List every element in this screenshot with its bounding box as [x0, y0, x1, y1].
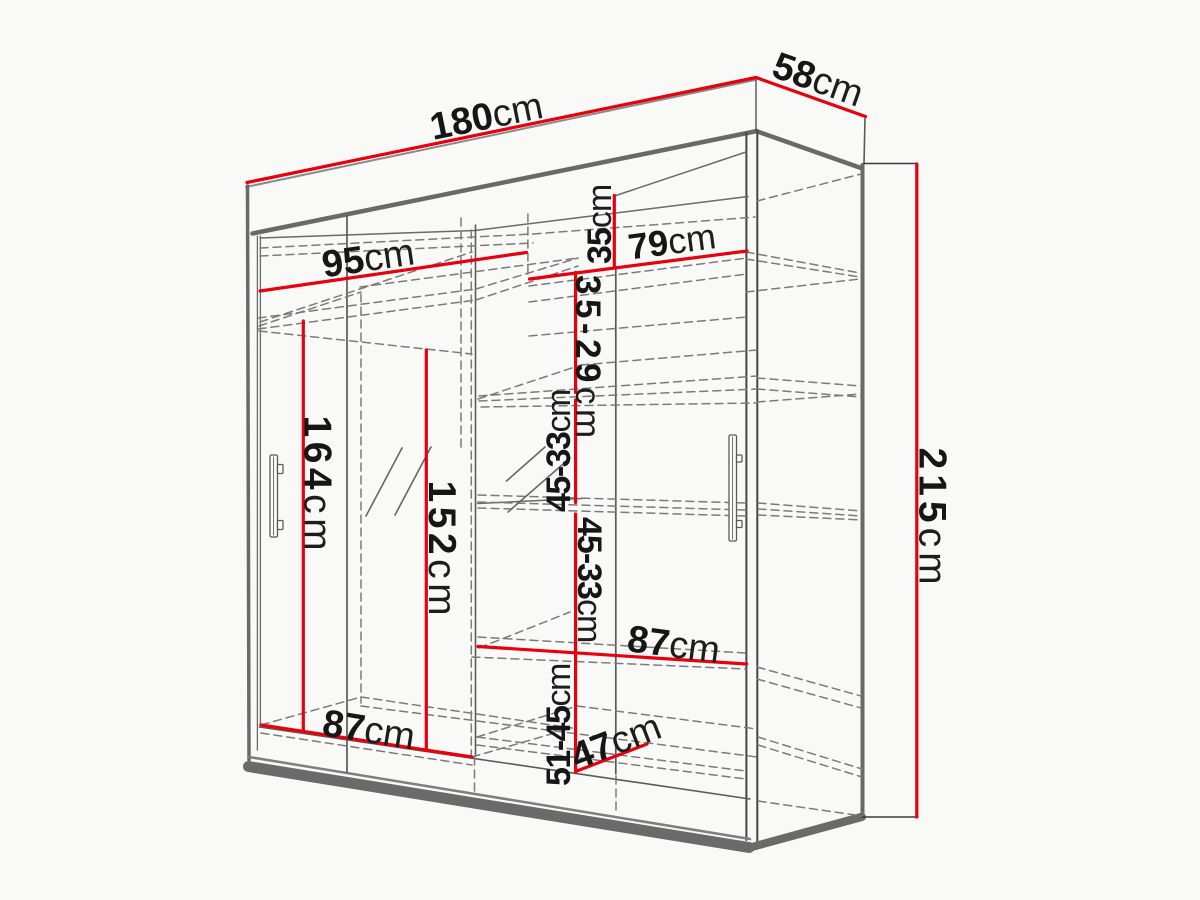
svg-text:152cm: 152cm	[420, 481, 463, 621]
svg-text:45-33cm: 45-33cm	[570, 517, 608, 642]
svg-text:45-33cm: 45-33cm	[540, 390, 578, 512]
svg-text:164cm: 164cm	[296, 416, 339, 556]
svg-text:51-45cm: 51-45cm	[540, 664, 578, 786]
svg-text:35cm: 35cm	[581, 185, 619, 264]
svg-text:215cm: 215cm	[911, 448, 954, 590]
